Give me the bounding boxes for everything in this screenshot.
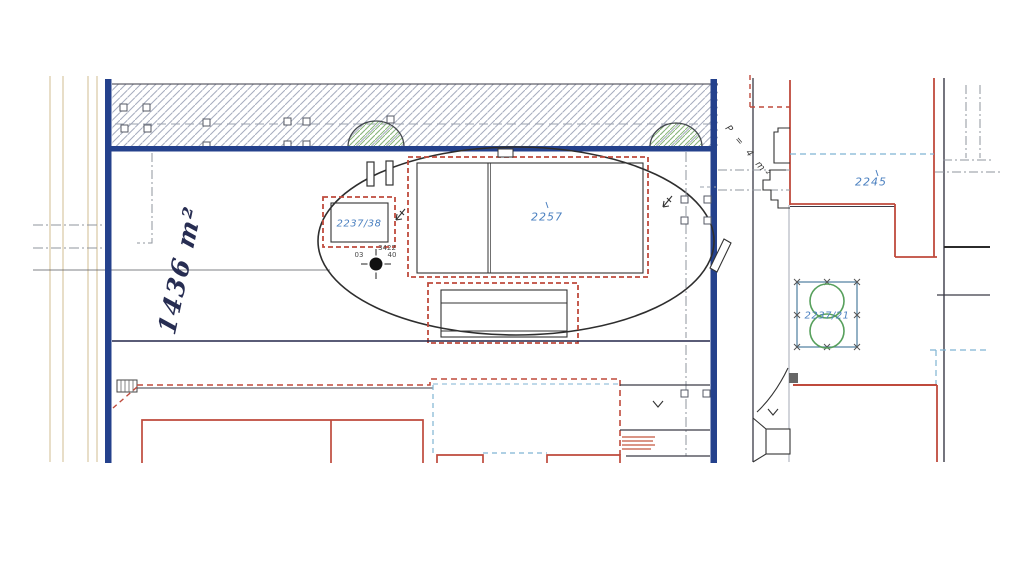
main-building-2257 (408, 149, 648, 277)
survey-point-value-right: 40 (388, 251, 397, 259)
left-margin-grid-lines (50, 76, 97, 462)
survey-point-marker (361, 249, 391, 279)
parcel-label-2237-21: 2237/21 (804, 311, 849, 322)
hatched-road-strip (112, 84, 718, 146)
bottom-left-boundaries (113, 379, 620, 455)
bottom-middle-structures (620, 385, 710, 456)
interior-axis-and-markers (681, 152, 731, 456)
bottom-left-building (142, 420, 620, 463)
parcel-label-2245: 2245 (855, 176, 887, 189)
parcel-label-2237-38: 2237/38 (336, 219, 381, 230)
right-section-lines (718, 75, 1000, 462)
plan-linework (0, 0, 1028, 570)
cadastral-site-plan: 1436 m² P = 4 m² 2237/38 2257 2245 2237/… (0, 0, 1028, 570)
left-margin-axis-lines (33, 153, 152, 248)
check-marker-icon (653, 401, 663, 407)
oval-structure-outline (318, 147, 714, 335)
ramp-structure (753, 368, 798, 462)
check-marker-icon (768, 409, 778, 415)
canopy-structure (428, 283, 578, 343)
parcel-label-2257: 2257 (531, 211, 563, 224)
survey-point-value-left: 03 (355, 251, 364, 259)
